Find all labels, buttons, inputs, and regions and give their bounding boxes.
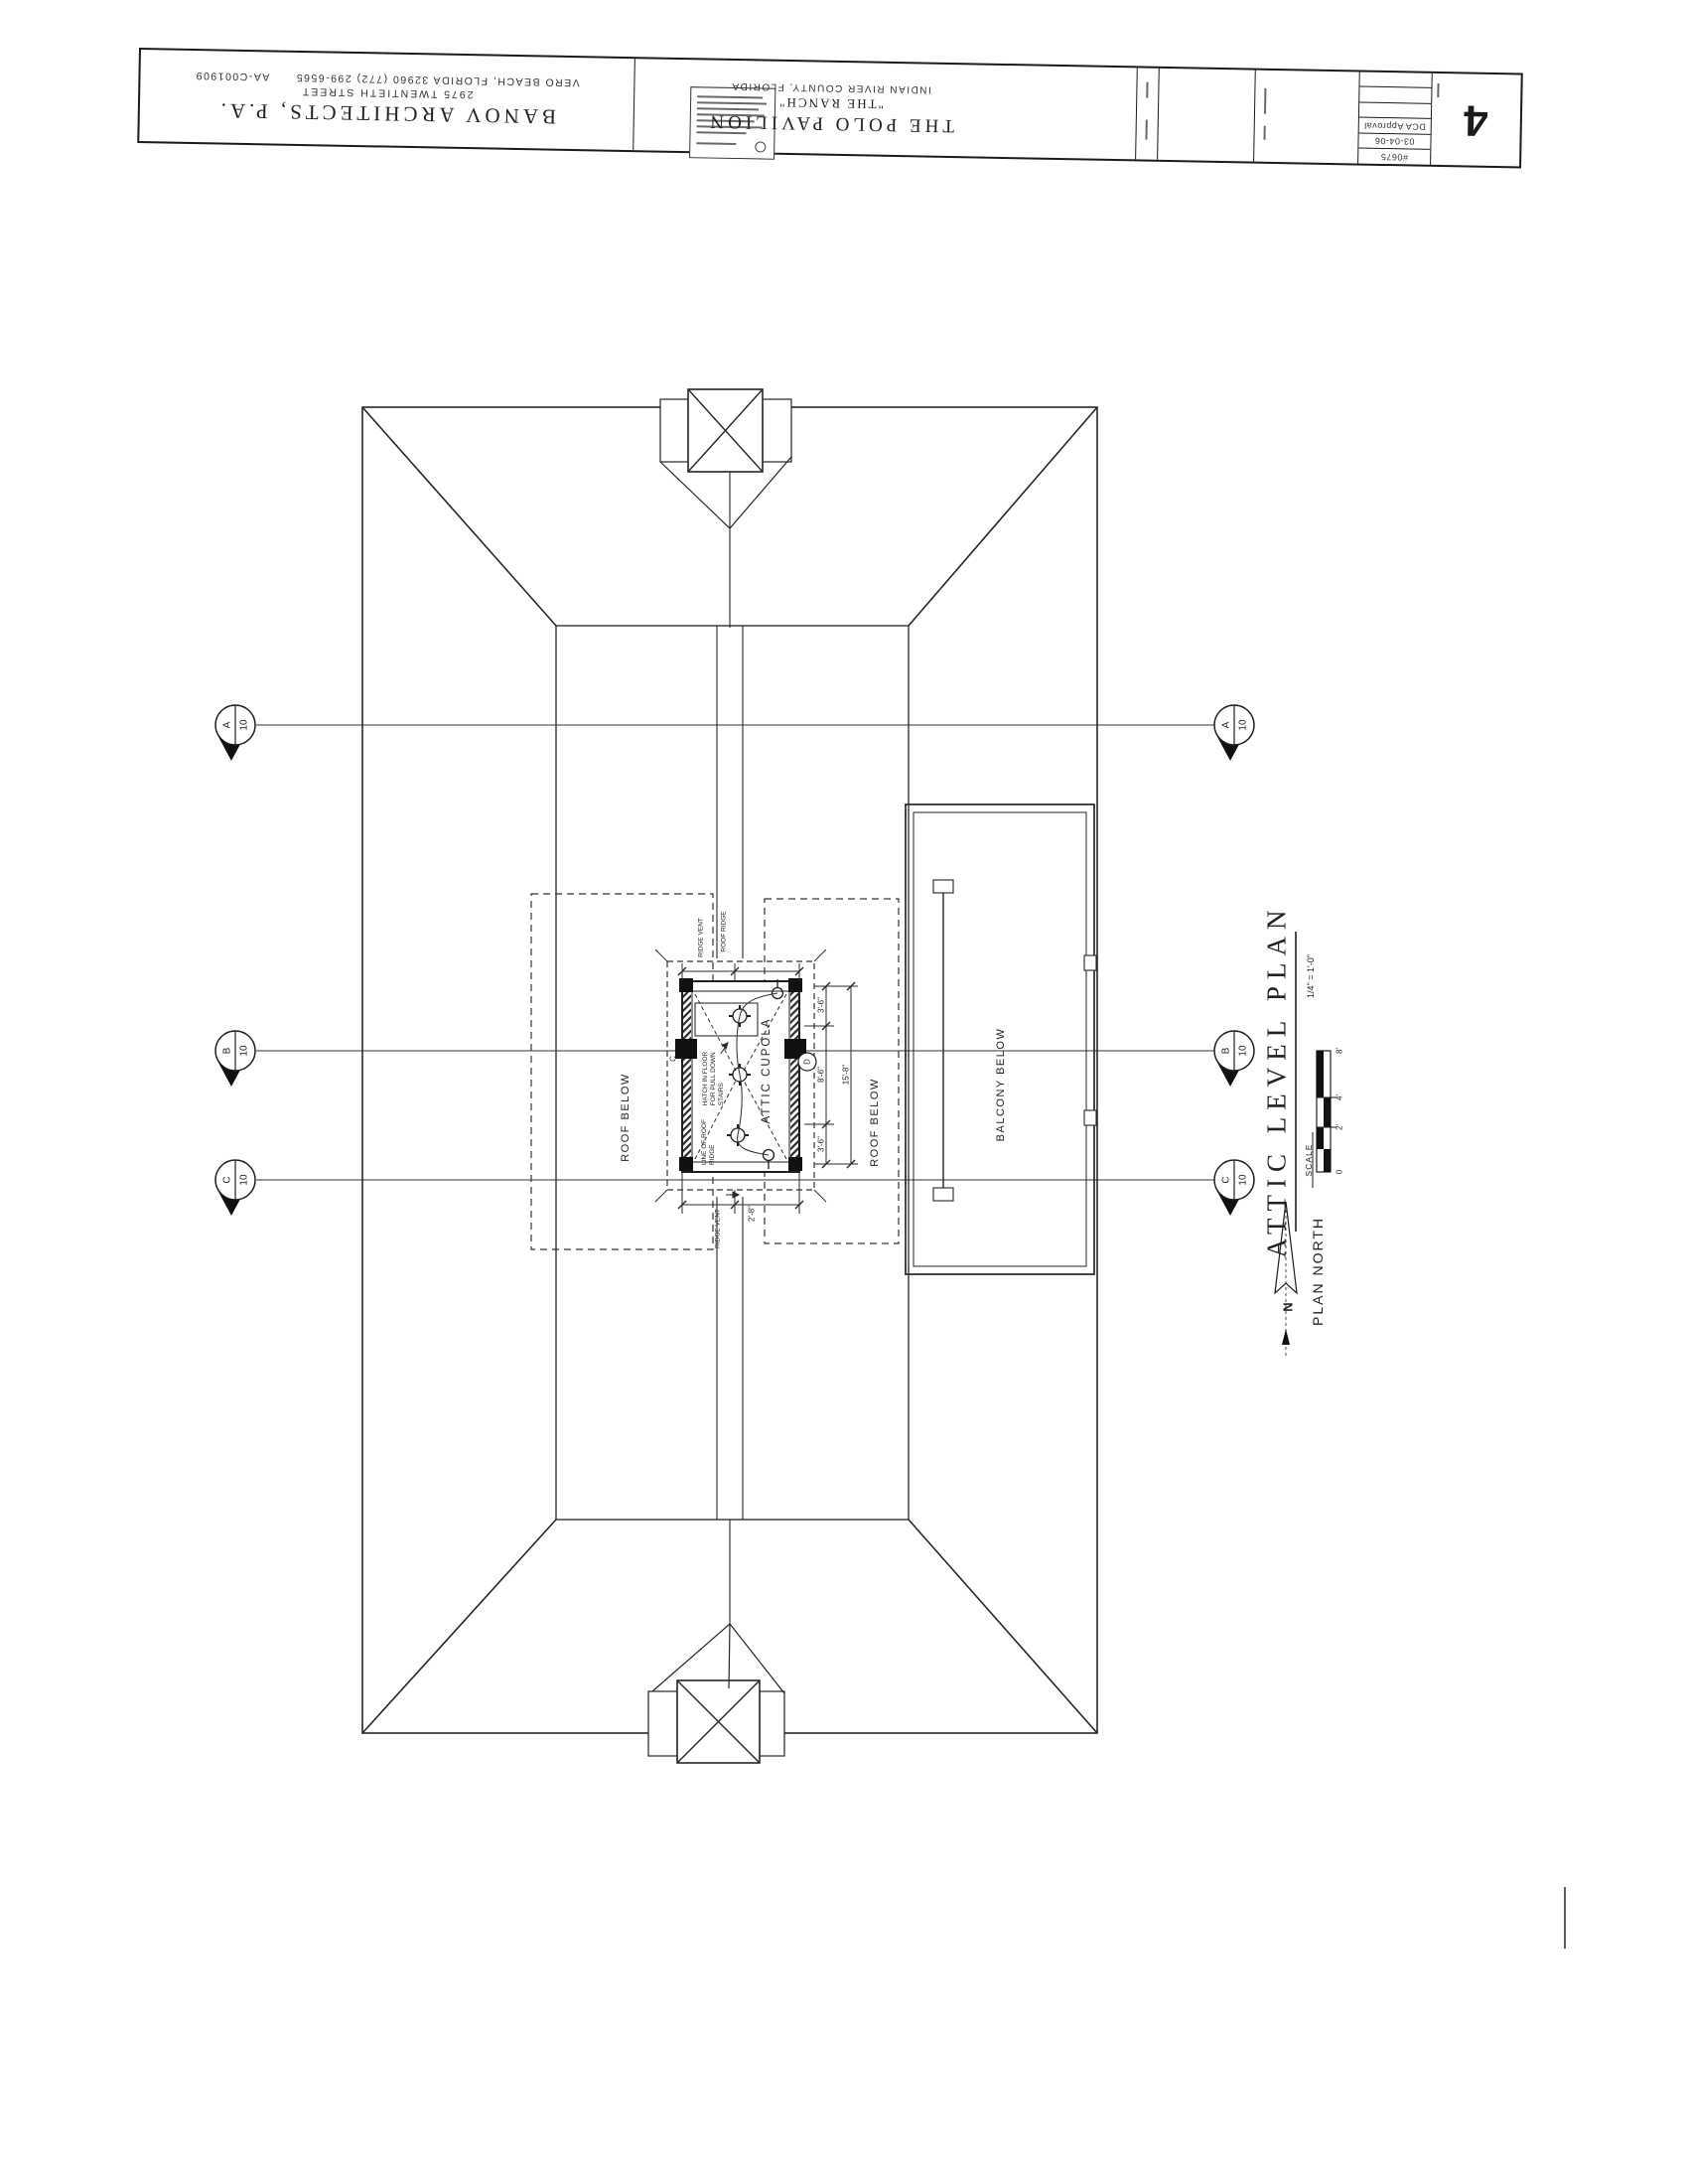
scale-tick-8: 8' — [1336, 1048, 1344, 1054]
bubble-letter: B — [1221, 1048, 1232, 1055]
drawing-sheet: ROOF BELOW ROOF BELOW BALCONY BELOW ATTI… — [0, 0, 1688, 2184]
attic-cupola-label: ATTIC CUPOLA — [761, 1018, 773, 1124]
balcony-below-label: BALCONY BELOW — [995, 1028, 1007, 1142]
sheet-number-cell: 4 — [1430, 73, 1521, 167]
detail-letter-d: D — [803, 1059, 812, 1065]
revision-row: #0675 — [1358, 149, 1430, 165]
dim-right-bottom: 3'-6" — [817, 1136, 826, 1152]
ridge-vent-bottom-label: RIDGE VENT — [715, 1209, 722, 1248]
empty-cell-1 — [1157, 69, 1255, 162]
bubble-sheet: 10 — [239, 719, 250, 730]
bubble-sheet: 10 — [1238, 719, 1249, 730]
plan-linework — [0, 0, 1688, 2184]
revision-row: 03-04-06 — [1358, 134, 1430, 151]
revision-table: #0675 03-04-06 DCA Approval — [1357, 73, 1432, 165]
bottom-cupola — [648, 1624, 784, 1763]
dim-right-top: 3'-6" — [817, 997, 826, 1013]
scale-tick-2: 2' — [1336, 1124, 1344, 1130]
roof-below-right-label: ROOF BELOW — [869, 1078, 881, 1167]
attic-cupola-detail — [655, 949, 826, 1202]
plan-title: ATTIC LEVEL PLAN — [1262, 904, 1293, 1258]
revision-row: DCA Approval — [1359, 118, 1431, 135]
ridge-vent-top-label: RIDGE VENT — [698, 918, 705, 957]
grid-letter-c: C — [669, 1056, 678, 1062]
bubble-letter: A — [1221, 722, 1232, 729]
sheet-number: 4 — [1464, 94, 1488, 144]
architect-name: BANOV ARCHITECTS, P.A. — [216, 98, 556, 129]
roof-below-left-label: ROOF BELOW — [620, 1073, 632, 1162]
project-cell: THE POLO PAVILION "THE RANCH" INDIAN RIV… — [633, 59, 1137, 159]
architect-cell: BANOV ARCHITECTS, P.A. 2975 TWENTIETH ST… — [139, 50, 634, 150]
revision-row — [1359, 87, 1431, 104]
revision-row — [1359, 73, 1431, 89]
north-letter: N — [1281, 1302, 1296, 1311]
architect-license: AA-C001909 — [195, 71, 269, 83]
bubble-letter: B — [222, 1048, 233, 1055]
narrow-cell — [1135, 68, 1159, 159]
revision-row — [1359, 103, 1431, 120]
scale-label: SCALE — [1304, 1144, 1314, 1177]
plan-north-label: PLAN NORTH — [1310, 1217, 1326, 1326]
architect-street: 2975 TWENTIETH STREET — [301, 85, 474, 100]
bubble-letter: A — [222, 722, 233, 729]
bubble-sheet: 10 — [239, 1045, 250, 1056]
project-name: THE POLO PAVILION — [666, 109, 994, 137]
scale-tick-0: 0 — [1336, 1170, 1344, 1174]
ridge-note: LINE OF ROOF RIDGE — [701, 1119, 717, 1165]
dim-right-middle: 8'-6" — [817, 1067, 826, 1083]
bubble-sheet: 10 — [239, 1174, 250, 1185]
bubble-letter: C — [222, 1176, 233, 1183]
dim-right-overall: 15'-8" — [842, 1065, 851, 1085]
dim-bottom: 2'-8" — [748, 1206, 757, 1222]
scale-bar — [1317, 1051, 1336, 1172]
bubble-letter: C — [1221, 1176, 1232, 1183]
empty-cell-2 — [1253, 71, 1359, 164]
bubble-sheet: 10 — [1238, 1045, 1249, 1056]
roof-ridge-top-label: ROOF RIDGE — [721, 911, 728, 951]
bubble-sheet: 10 — [1238, 1174, 1249, 1185]
scale-value: 1/4" = 1'-0" — [1306, 954, 1316, 998]
scale-tick-4: 4' — [1336, 1094, 1344, 1100]
top-cupola — [660, 389, 791, 528]
hatch-note: HATCH IN FLOOR FOR PULL DOWN STAIRS — [702, 1052, 726, 1105]
